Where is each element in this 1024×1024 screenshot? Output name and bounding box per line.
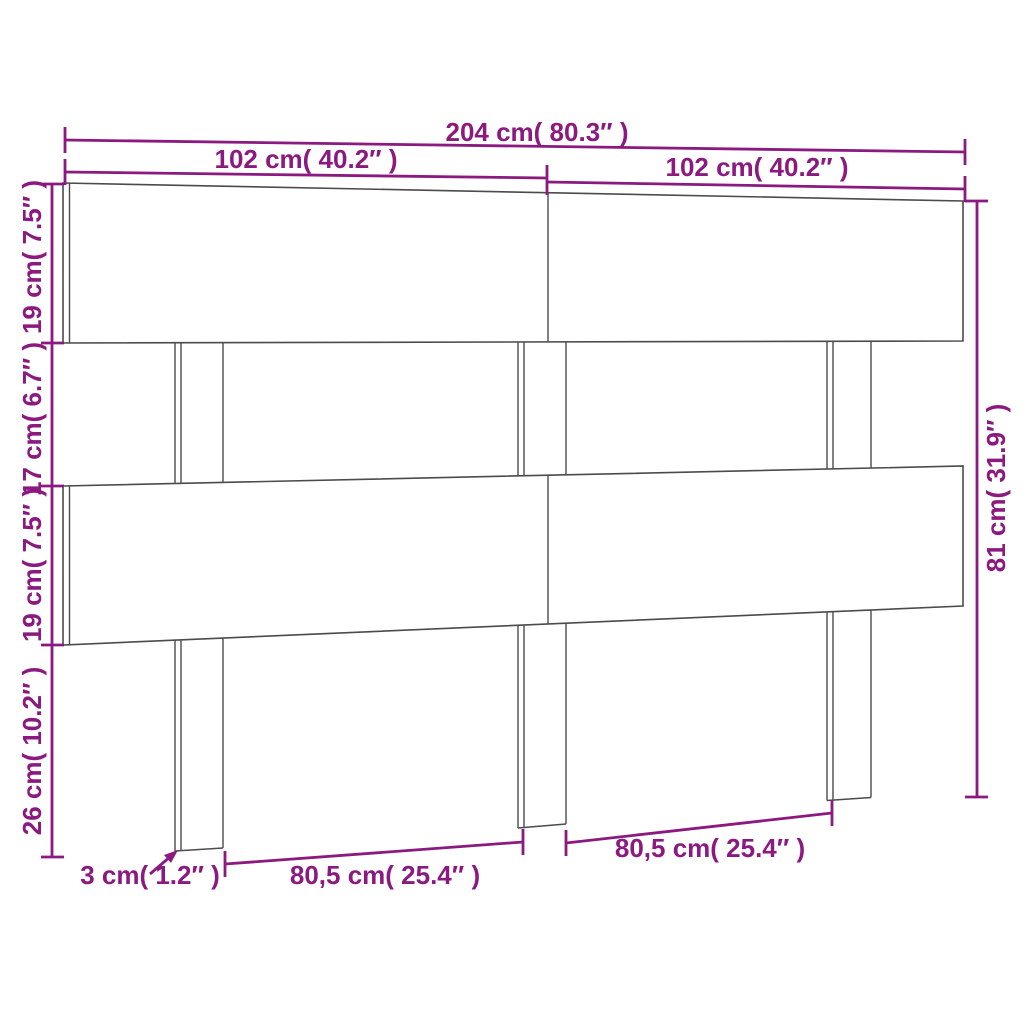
- headboard-drawing: 204 cm( 80.3″ ) 102 cm( 40.2″ ) 102 cm( …: [0, 0, 1024, 1024]
- dim-board-thickness: 3 cm( 1.2″ ): [80, 850, 220, 890]
- legs: [175, 610, 871, 851]
- dim-label-gap-height: 17 cm( 6.7″ ): [17, 342, 47, 496]
- dim-label-left-leg-spacing: 80,5 cm( 25.4″ ): [290, 860, 480, 890]
- top-board-face: [63, 183, 963, 343]
- dim-line: [547, 182, 965, 189]
- top-board: [63, 183, 963, 343]
- dim-label-left-half-width: 102 cm( 40.2″ ): [214, 144, 397, 174]
- middle-board: [63, 466, 963, 645]
- gap-post-right: [827, 341, 871, 469]
- dim-label-total-width: 204 cm( 80.3″ ): [445, 117, 628, 147]
- dim-label-board-thickness: 3 cm( 1.2″ ): [80, 860, 220, 890]
- dim-label-right-half-width: 102 cm( 40.2″ ): [665, 152, 848, 182]
- dim-label-right-leg-spacing: 80,5 cm( 25.4″ ): [615, 833, 805, 863]
- gap-post-left: [175, 343, 223, 484]
- dim-label-top-board-height: 19 cm( 7.5″ ): [17, 180, 47, 334]
- dim-label-total-height: 81 cm( 31.9″ ): [981, 404, 1011, 573]
- dim-left-leg-spacing: 80,5 cm( 25.4″ ): [225, 829, 523, 890]
- middle-board-face: [63, 466, 963, 645]
- dim-label-bottom-section-height: 26 cm( 10.2″ ): [17, 667, 47, 836]
- gap-posts: [175, 341, 871, 483]
- dim-left-heights: 19 cm( 7.5″ ) 17 cm( 6.7″ ) 19 cm( 7.5″ …: [17, 180, 64, 857]
- leg-left: [175, 638, 223, 851]
- leg-center: [518, 623, 566, 828]
- dim-label-middle-board-height: 19 cm( 7.5″ ): [17, 488, 47, 642]
- gap-post-center: [518, 342, 566, 476]
- leg-right: [827, 610, 871, 801]
- dim-right-leg-spacing: 80,5 cm( 25.4″ ): [566, 800, 832, 863]
- leg-bottom-edge: [518, 824, 566, 828]
- leg-bottom-edge: [175, 848, 223, 851]
- dim-total-height: 81 cm( 31.9″ ): [965, 201, 1011, 797]
- dimension-diagram: 204 cm( 80.3″ ) 102 cm( 40.2″ ) 102 cm( …: [0, 0, 1024, 1024]
- headboard-outline: [63, 183, 963, 851]
